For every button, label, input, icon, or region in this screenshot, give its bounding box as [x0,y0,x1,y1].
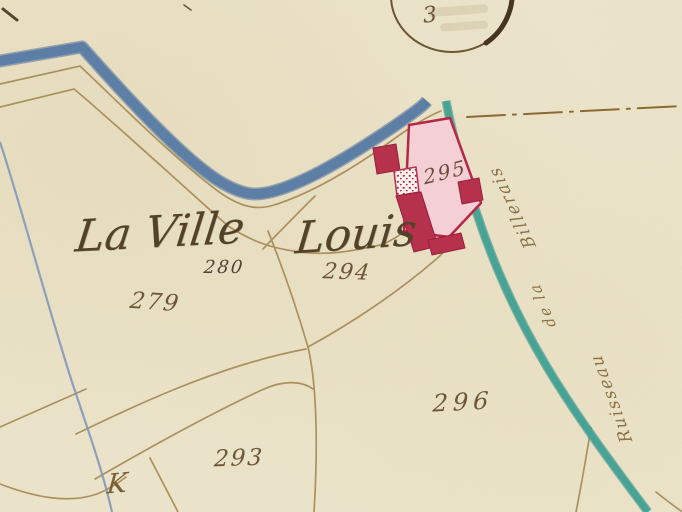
cadastral-map: La Ville Louis 279 280 293 294 295 296 B… [0,0,682,512]
section-circle-mark: 3 [422,4,438,27]
parcel-label-296: 296 [432,388,494,415]
corner-letter-mark: K [106,469,128,498]
parcel-label-293: 293 [213,447,264,472]
building-hatched-block [394,167,419,196]
building-outbuilding [458,178,483,204]
parcel-label-280: 280 [203,259,245,277]
place-name-louis: Louis [293,209,418,262]
parcel-label-294: 294 [321,261,372,285]
place-name-la-ville: La Ville [73,206,247,259]
building-annex [373,144,400,174]
parcel-label-279: 279 [128,290,182,316]
